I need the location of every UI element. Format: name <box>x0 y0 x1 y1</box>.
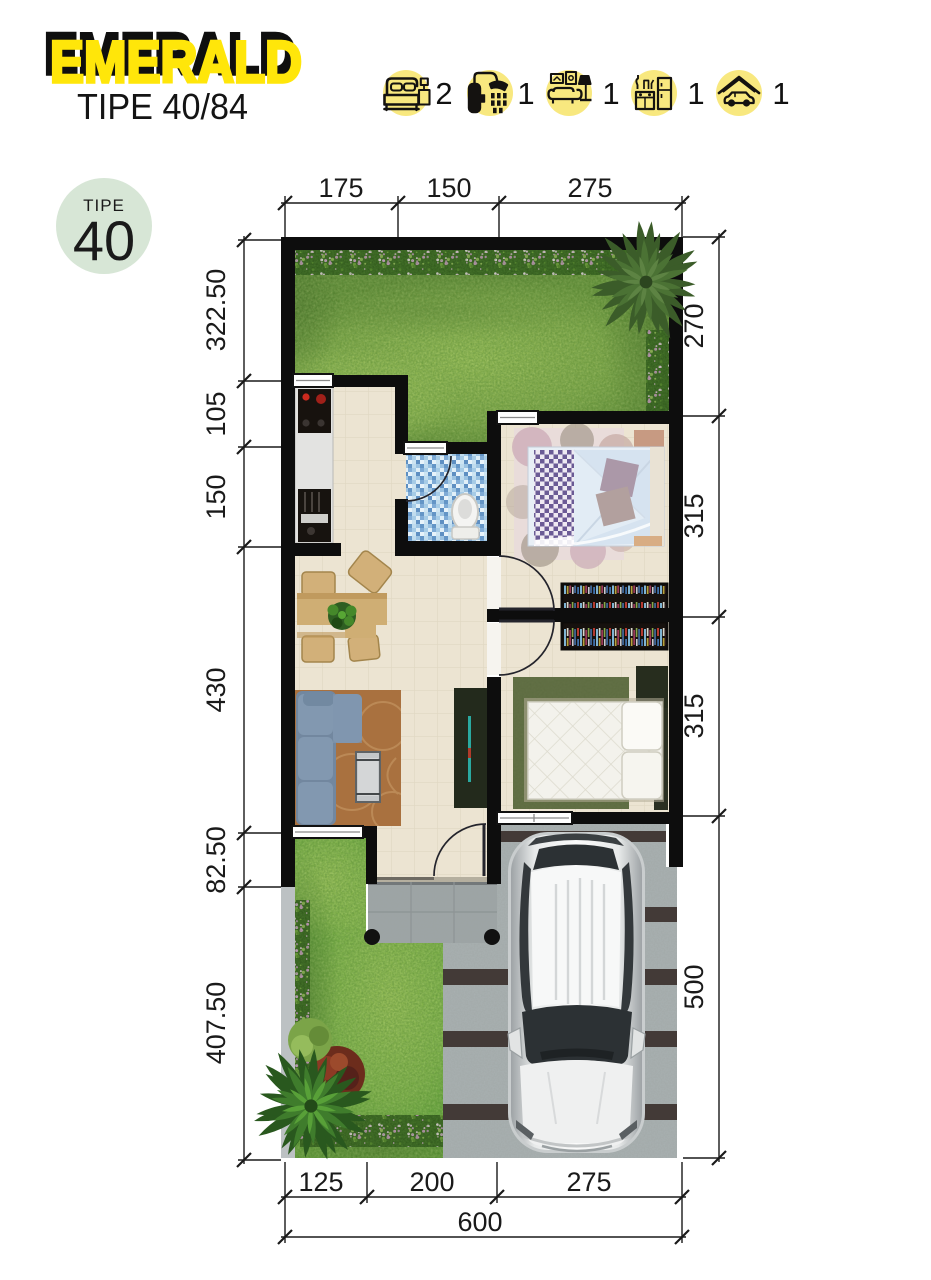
svg-text:275: 275 <box>567 173 612 203</box>
svg-text:407.50: 407.50 <box>201 982 231 1065</box>
svg-text:2: 2 <box>435 76 452 111</box>
svg-text:TIPE 40/84: TIPE 40/84 <box>77 86 248 127</box>
svg-text:1: 1 <box>687 76 704 111</box>
svg-text:150: 150 <box>426 173 471 203</box>
svg-text:150: 150 <box>201 474 231 519</box>
svg-text:270: 270 <box>679 303 709 348</box>
svg-text:600: 600 <box>457 1207 502 1237</box>
svg-text:105: 105 <box>201 391 231 436</box>
svg-text:322.50: 322.50 <box>201 269 231 352</box>
svg-text:1: 1 <box>602 76 619 111</box>
svg-text:1: 1 <box>772 76 789 111</box>
svg-text:1: 1 <box>517 76 534 111</box>
svg-text:82.50: 82.50 <box>201 826 231 894</box>
svg-text:315: 315 <box>679 493 709 538</box>
svg-text:430: 430 <box>201 667 231 712</box>
svg-text:500: 500 <box>679 964 709 1009</box>
svg-text:200: 200 <box>409 1167 454 1197</box>
svg-text:175: 175 <box>318 173 363 203</box>
svg-text:125: 125 <box>298 1167 343 1197</box>
svg-text:40: 40 <box>73 209 135 272</box>
svg-text:275: 275 <box>566 1167 611 1197</box>
svg-text:315: 315 <box>679 693 709 738</box>
